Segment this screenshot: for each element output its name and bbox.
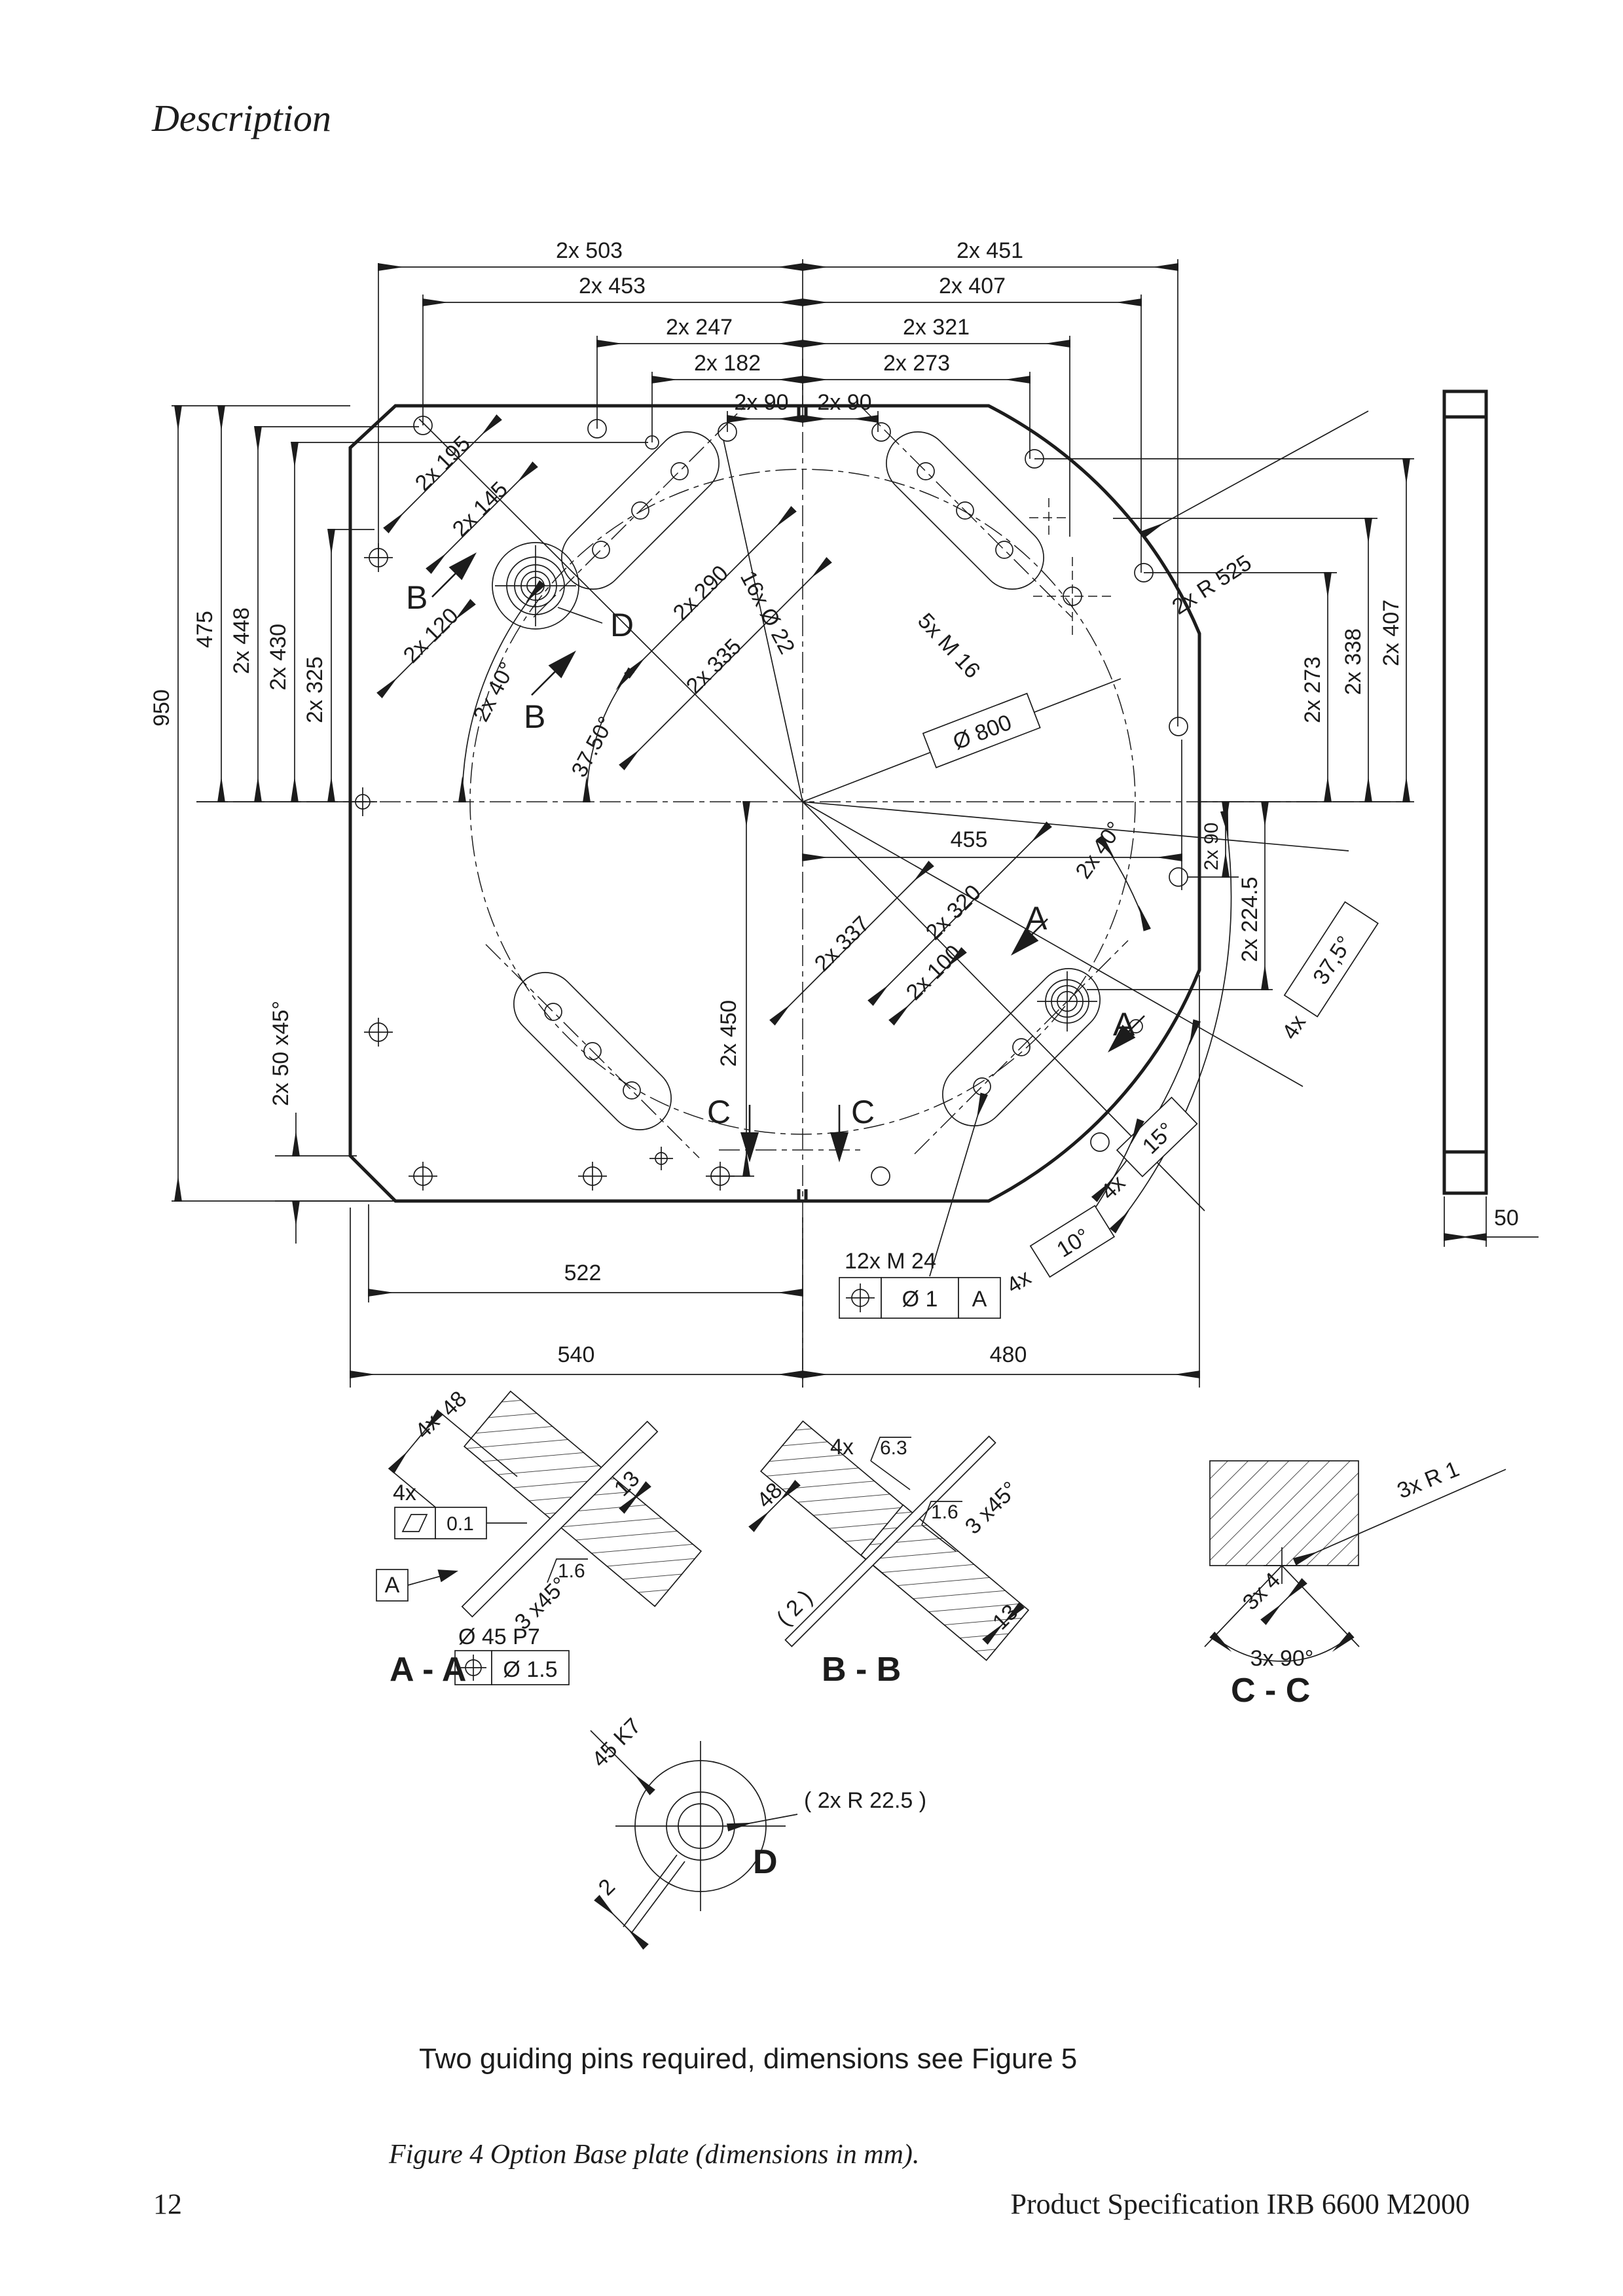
dim-5x-m16: 5x M 16 <box>913 609 985 683</box>
dim-540: 540 <box>558 1342 595 1367</box>
aa-fcf-tolerance: Ø 1.5 <box>503 1657 557 1682</box>
dim-480: 480 <box>990 1342 1027 1367</box>
bb-finish-63: 6.3 <box>880 1437 907 1459</box>
dim-2x453: 2x 453 <box>579 274 646 298</box>
dim-37-5-prefix: 4x <box>1277 1011 1311 1044</box>
aa-finish-value: 1.6 <box>558 1560 585 1582</box>
bb-qty: 4x <box>830 1435 854 1460</box>
bb-title: B - B <box>822 1651 901 1689</box>
guide-pin-feature-d <box>492 543 579 629</box>
detail-mark-d: D <box>610 607 634 643</box>
dim-2x195: 2x 195 <box>410 431 475 496</box>
d-radius: ( 2x R 22.5 ) <box>804 1788 926 1813</box>
left-dimension-chains: 950 475 2x 448 2x 430 2x 325 2x 50 x45° <box>149 406 648 1244</box>
boxed-angle-dimensions: 37,5° 4x 15° 4x 10° 4x <box>996 812 1377 1299</box>
bottom-dimensions: 522 540 480 12x M 24 Ø 1 A <box>350 975 1199 1388</box>
aa-dim-48: 48 <box>437 1386 472 1422</box>
section-mark-b2: B <box>524 698 545 735</box>
datum-triangle-icon <box>437 1564 460 1582</box>
dim-2x321: 2x 321 <box>903 315 970 340</box>
fcf-main: Ø 1 A <box>839 1278 1000 1318</box>
dim-10-prefix: 4x <box>1002 1265 1036 1299</box>
aa-qty-48: 4x <box>410 1409 445 1443</box>
section-mark-a2: A <box>1113 1006 1135 1043</box>
aa-pin-diameter: Ø 45 P7 <box>458 1624 540 1649</box>
d-dim-2: 2 <box>594 1874 620 1900</box>
dim-2x407-right: 2x 407 <box>1379 600 1404 666</box>
section-c-c: 3x R 1 3x 4 3x 90° C - C <box>1205 1456 1506 1710</box>
dim-2x224-5: 2x 224.5 <box>1237 877 1262 962</box>
dim-2x145: 2x 145 <box>448 477 513 542</box>
dim-2x-r525: 2x R 525 <box>1168 550 1256 620</box>
bb-finish-16: 1.6 <box>931 1501 958 1523</box>
note-guiding-pins: Two guiding pins required, dimensions se… <box>419 2043 1077 2075</box>
cc-angle: 3x 90° <box>1250 1646 1314 1671</box>
dim-2x90-right: 2x 90 <box>817 390 871 415</box>
bb-chamfer: 3 x45° <box>960 1477 1023 1539</box>
dim-2x430: 2x 430 <box>266 624 291 691</box>
dim-2x247: 2x 247 <box>666 315 733 340</box>
dim-2x407-top: 2x 407 <box>939 274 1006 298</box>
slot-axes <box>486 404 1128 1158</box>
section-mark-b1: B <box>406 579 428 616</box>
dim-2x451: 2x 451 <box>957 238 1023 263</box>
d-fit-45k7: 45 K7 <box>587 1713 646 1772</box>
dim-2x448: 2x 448 <box>229 607 254 674</box>
dim-950: 950 <box>149 689 174 726</box>
figure-4-drawing: Description Two guiding pins required, d… <box>0 0 1623 2296</box>
cc-radius: 3x R 1 <box>1394 1456 1463 1503</box>
dim-2x90-left: 2x 90 <box>734 390 788 415</box>
document-page: Description Two guiding pins required, d… <box>0 0 1623 2296</box>
figure-caption: Figure 4 Option Base plate (dimensions i… <box>388 2140 919 2170</box>
dim-2x100: 2x 100 <box>902 941 966 1005</box>
dim-2x273-right: 2x 273 <box>1300 656 1325 723</box>
dim-2x335: 2x 335 <box>682 634 746 699</box>
section-b-b: 4x 6.3 48 1.6 3 x45° ( 2 ) 13 B - B <box>752 1421 1029 1689</box>
section-a-a: 4x 48 4x 0.1 A 13 1.6 3 x45° Ø 45 P7 Ø 1… <box>376 1386 701 1689</box>
dim-2x182: 2x 182 <box>694 351 761 376</box>
footer-page-number: 12 <box>153 2188 182 2220</box>
aa-fcf-qty: 4x <box>393 1480 416 1505</box>
dim-12x-m24: 12x M 24 <box>845 1249 936 1274</box>
dim-455: 455 <box>951 827 988 852</box>
dim-475: 475 <box>192 611 217 648</box>
dim-2x320: 2x 320 <box>921 880 986 945</box>
dim-2x90-edge: 2x 90 <box>1201 823 1222 870</box>
dim-2x503: 2x 503 <box>556 238 623 263</box>
dim-2x338: 2x 338 <box>1341 628 1366 695</box>
section-mark-c2: C <box>851 1094 875 1130</box>
dim-2x450: 2x 450 <box>716 1000 741 1067</box>
dim-37-50: 37.50° <box>567 713 619 781</box>
dim-2x40-upper: 2x 40° <box>469 658 520 725</box>
aa-datum-letter: A <box>385 1573 400 1598</box>
detail-d: 45 K7 2 ( 2x R 22.5 ) D <box>587 1713 926 1946</box>
dim-50-thickness: 50 <box>1494 1206 1519 1230</box>
page-title: Description <box>151 97 331 139</box>
aa-title: A - A <box>390 1651 466 1689</box>
dim-2x290: 2x 290 <box>668 561 733 626</box>
dim-chamfer-50x45: 2x 50 x45° <box>268 1001 293 1106</box>
cc-title: C - C <box>1231 1672 1310 1710</box>
d-title: D <box>753 1843 778 1881</box>
angle-dimensions-upper-left: 2x 40° 37.50° <box>462 583 631 802</box>
fcf-main-tolerance: Ø 1 <box>902 1287 938 1312</box>
side-view: 50 <box>1444 391 1539 1247</box>
section-mark-a1: A <box>1025 900 1048 937</box>
aa-flatness-value: 0.1 <box>447 1513 474 1535</box>
hole-crosshairs <box>348 498 1112 1191</box>
dim-2x337: 2x 337 <box>810 912 875 977</box>
fcf-main-datum: A <box>972 1287 987 1312</box>
footer-doc-title: Product Specification IRB 6600 M2000 <box>1011 2188 1470 2220</box>
dim-522: 522 <box>564 1261 602 1285</box>
dim-2x325: 2x 325 <box>302 656 327 723</box>
section-mark-c1: C <box>707 1094 731 1130</box>
dim-2x273-top: 2x 273 <box>883 351 950 376</box>
